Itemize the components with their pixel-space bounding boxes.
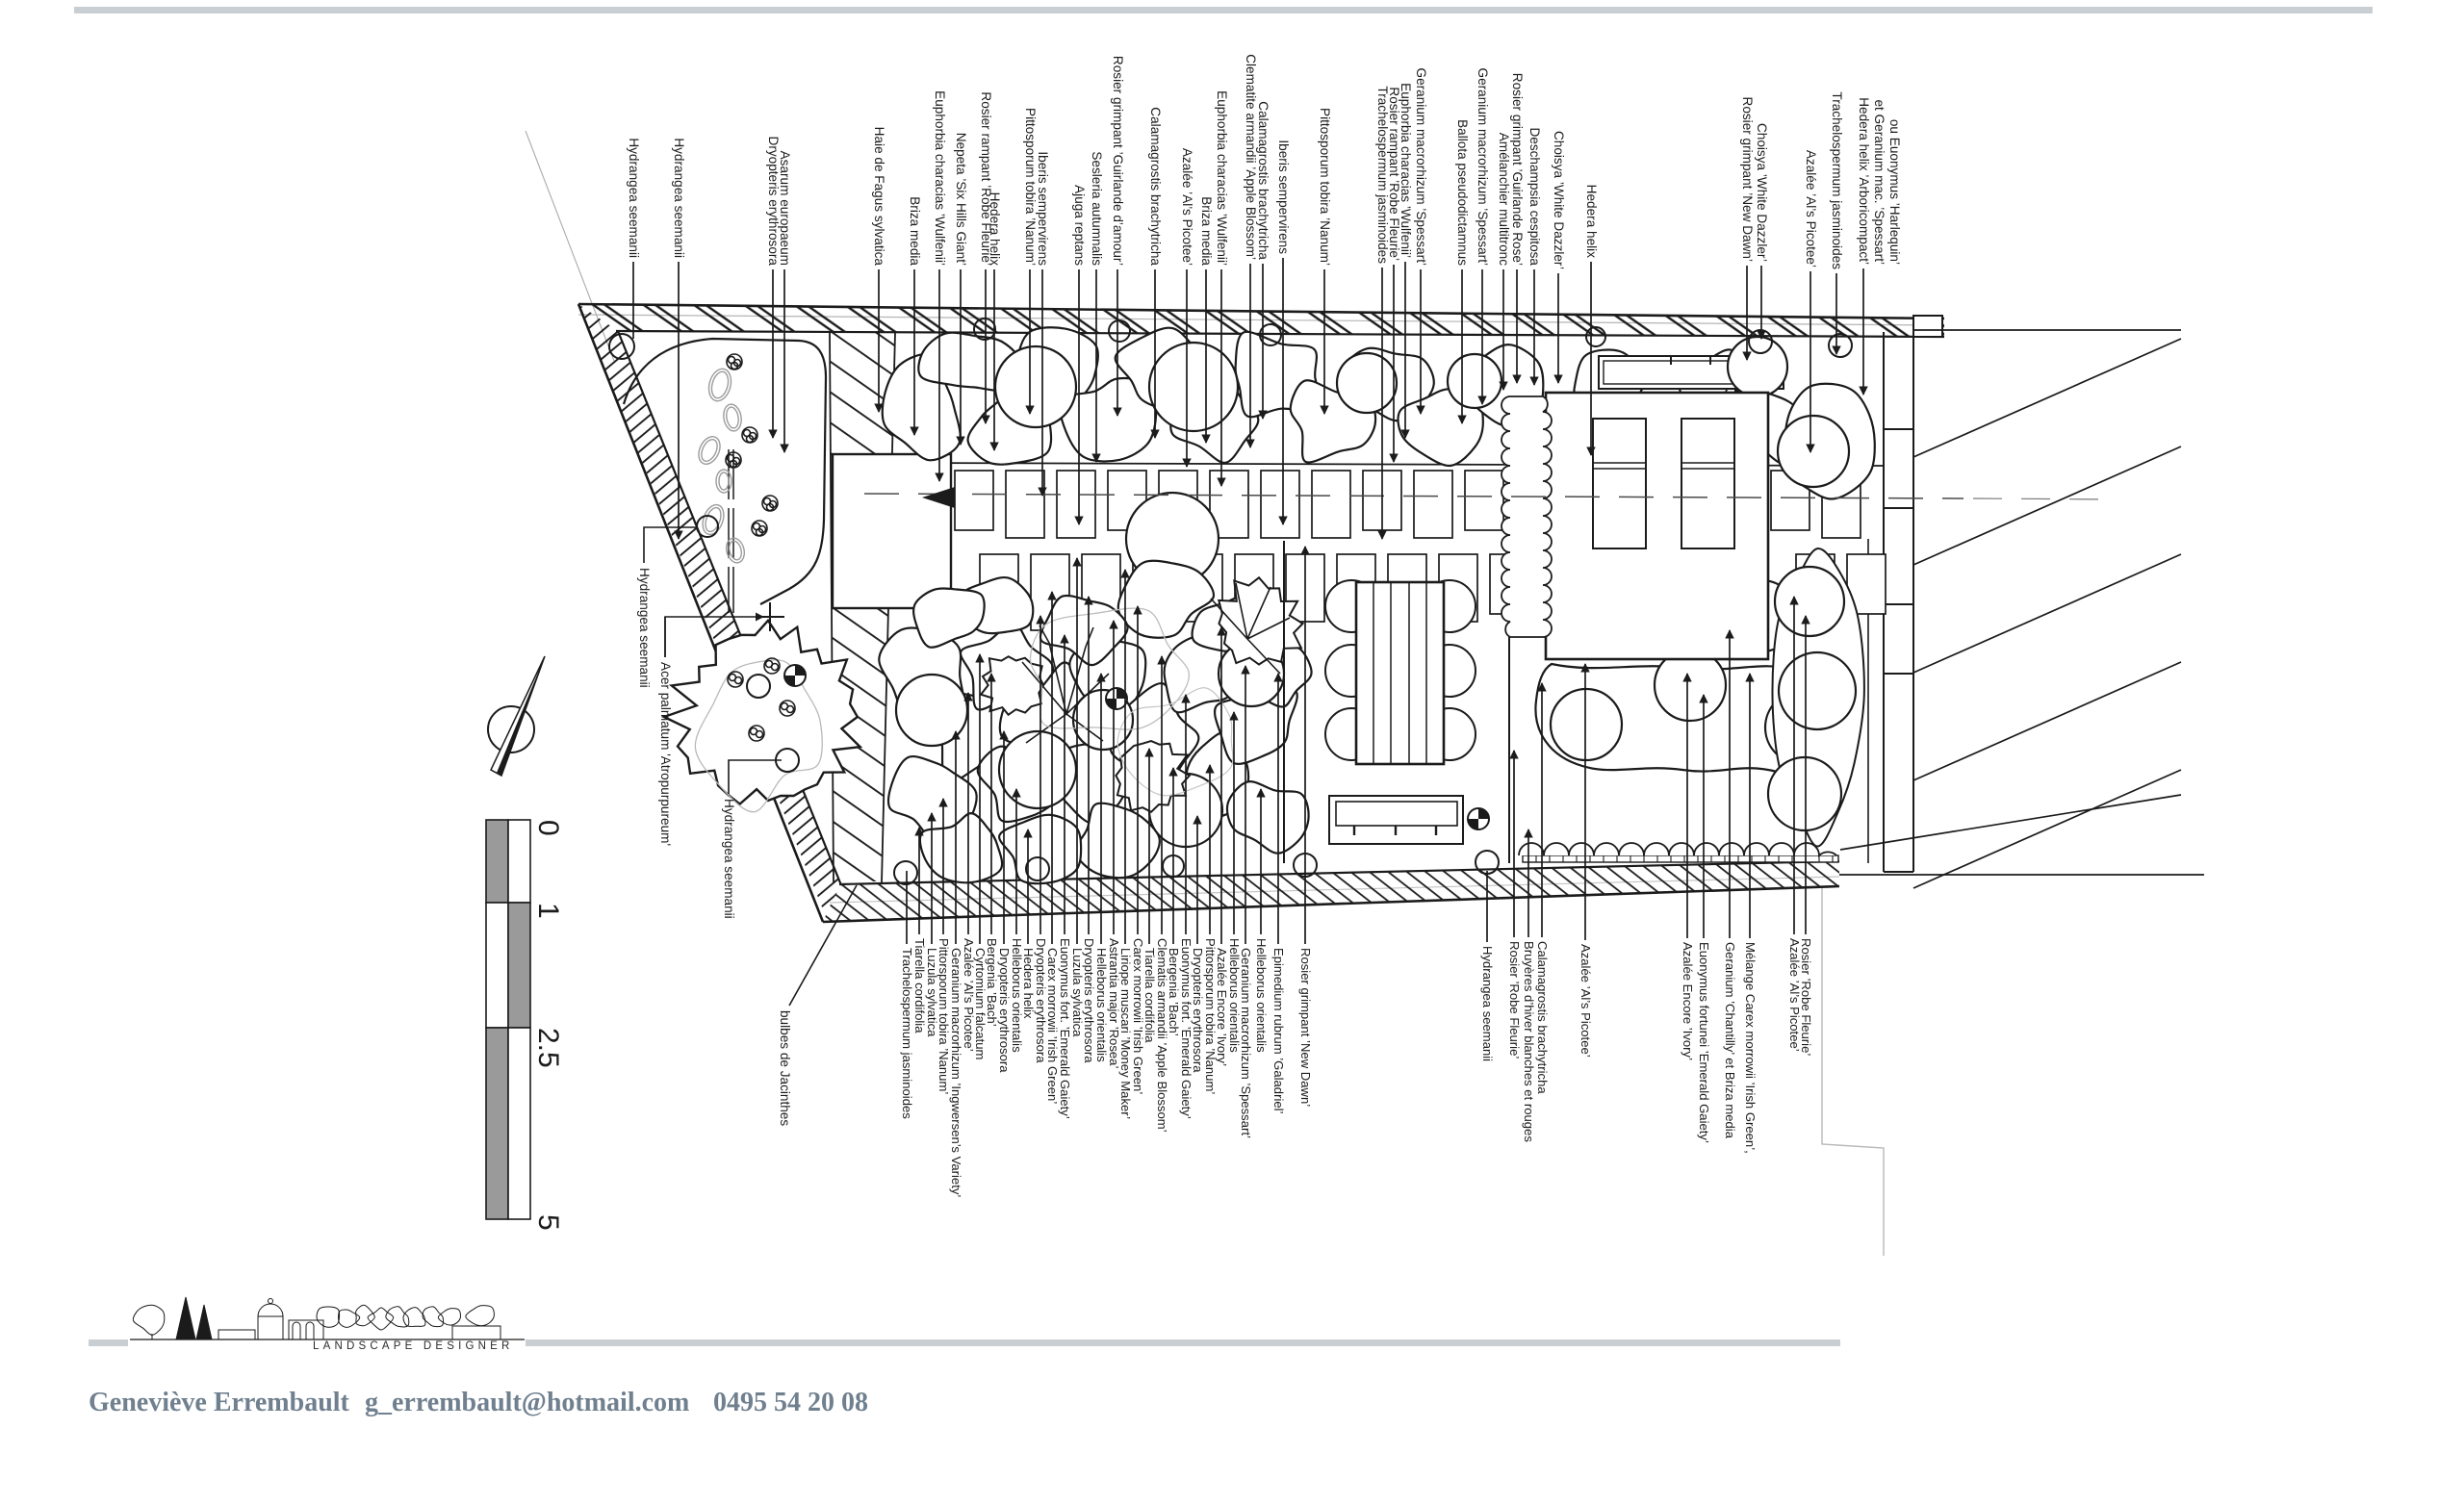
svg-text:Hydrangea seemanii: Hydrangea seemanii	[672, 138, 686, 258]
svg-text:Choisya ’White Dazzler’: Choisya ’White Dazzler’	[1755, 123, 1769, 262]
svg-text:Azalée ’Al’s Picotee’: Azalée ’Al’s Picotee’	[1180, 148, 1194, 266]
svg-text:Euonymus fortunei ’Emerald Gai: Euonymus fortunei ’Emerald Gaiety’	[1697, 942, 1711, 1143]
svg-text:et Geranium mac. ’Spessart’: et Geranium mac. ’Spessart’	[1872, 100, 1886, 266]
svg-text:Bergenia ’Bach’: Bergenia ’Bach’	[985, 938, 999, 1027]
svg-text:Geranium macrorhizum ’Ingwerse: Geranium macrorhizum ’Ingwersen’s Variet…	[949, 948, 963, 1197]
svg-text:Clematite armandii ’Apple Blos: Clematite armandii ’Apple Blossom’	[1244, 54, 1258, 260]
svg-text:Briza media: Briza media	[908, 196, 922, 266]
svg-text:Hedera helix: Hedera helix	[1021, 948, 1036, 1019]
svg-text:Azalée Encore ’Ivory’: Azalée Encore ’Ivory’	[1681, 942, 1695, 1060]
svg-text:Hydrangea seemanii: Hydrangea seemanii	[627, 138, 641, 258]
svg-text:0: 0	[532, 820, 564, 836]
svg-text:Liriope muscari ’Money Maker’: Liriope muscari ’Money Maker’	[1118, 948, 1133, 1119]
svg-text:Choisya ’White Dazzler’: Choisya ’White Dazzler’	[1552, 131, 1566, 269]
svg-text:Deschampsia cespitosa: Deschampsia cespitosa	[1527, 127, 1542, 266]
svg-text:Calamagrostis brachytricha: Calamagrostis brachytricha	[1148, 107, 1163, 266]
svg-text:Azalée ’Al’s Picotee’: Azalée ’Al’s Picotee’	[1804, 150, 1818, 268]
svg-text:Geranium macrorhizum ’Spessart: Geranium macrorhizum ’Spessart’	[1476, 68, 1490, 266]
svg-text:Azalée ’Al’s Picotee’: Azalée ’Al’s Picotee’	[1578, 944, 1593, 1058]
svg-text:Geranium ’Chantilly’ et Briza: Geranium ’Chantilly’ et Briza media	[1723, 942, 1737, 1139]
svg-text:Rosier grimpant ’Guirlande d’a: Rosier grimpant ’Guirlande d’amour’	[1111, 56, 1125, 266]
svg-text:Pittosporum tobira ’Nanum’: Pittosporum tobira ’Nanum’	[1318, 108, 1332, 266]
svg-text:Azalée Encore ’Ivory’: Azalée Encore ’Ivory’	[1215, 948, 1229, 1066]
svg-text:Bergenia ’Bach’: Bergenia ’Bach’	[1167, 948, 1181, 1036]
svg-text:Hedera helix: Hedera helix	[988, 192, 1002, 267]
svg-text:Rosier grimpant ’New Dawn’: Rosier grimpant ’New Dawn’	[1298, 948, 1313, 1107]
svg-text:2.5: 2.5	[532, 1028, 564, 1068]
svg-text:LANDSCAPE DESIGNER: LANDSCAPE DESIGNER	[313, 1340, 514, 1352]
svg-text:Hydrangea seemanii: Hydrangea seemanii	[637, 568, 652, 688]
svg-text:5: 5	[532, 1214, 564, 1231]
svg-text:Rosier grimpant ’Guirlande Ros: Rosier grimpant ’Guirlande Rose’	[1510, 73, 1525, 266]
svg-text:Rosier ’Robe Fleurie’: Rosier ’Robe Fleurie’	[1799, 938, 1813, 1056]
svg-text:Rosier ’Robe Fleurie’: Rosier ’Robe Fleurie’	[1507, 941, 1522, 1059]
svg-text:Nepeta ’Six Hills Giant’: Nepeta ’Six Hills Giant’	[954, 133, 968, 266]
svg-text:Acer palmatum 'Atropurpureum': Acer palmatum 'Atropurpureum'	[658, 662, 673, 846]
svg-text:Hedera helix: Hedera helix	[1584, 185, 1599, 259]
svg-text:Iberis sempervirens: Iberis sempervirens	[1036, 151, 1050, 266]
svg-text:Dryopteris erythrosora: Dryopteris erythrosora	[1082, 938, 1096, 1063]
svg-text:Iberis sempervirens: Iberis sempervirens	[1276, 140, 1291, 254]
svg-text:Geranium macrorhizum ’Spessart: Geranium macrorhizum ’Spessart’	[1414, 68, 1428, 266]
svg-text:Ballota pseudodictamnus: Ballota pseudodictamnus	[1455, 119, 1470, 266]
svg-text:Calamagrostis brachytricha: Calamagrostis brachytricha	[1256, 101, 1270, 260]
svg-text:Helleborus orientalis: Helleborus orientalis	[1094, 948, 1109, 1062]
svg-text:g_errembault@hotmail.com: g_errembault@hotmail.com	[365, 1388, 689, 1417]
svg-text:Calamagrostis brachytricha: Calamagrostis brachytricha	[1535, 941, 1550, 1094]
svg-text:Euphorbia characias ’Wulfenii’: Euphorbia characias ’Wulfenii’	[1399, 83, 1413, 258]
svg-text:Briza media: Briza media	[1199, 196, 1214, 266]
svg-text:Geranium macrorhizum ’Spessart: Geranium macrorhizum ’Spessart’	[1239, 948, 1253, 1138]
svg-text:Dryopteris erythrosora: Dryopteris erythrosora	[997, 948, 1012, 1073]
svg-text:Euphorbia characias ’Wulfenii’: Euphorbia characias ’Wulfenii’	[1215, 90, 1229, 266]
svg-text:Rosier grimpant ’New Dawn’: Rosier grimpant ’New Dawn’	[1740, 97, 1755, 263]
svg-text:Hydrangea seemanii: Hydrangea seemanii	[722, 799, 736, 919]
svg-text:Hedera helix ’Arboricompact’: Hedera helix ’Arboricompact’	[1857, 97, 1871, 265]
svg-text:Pittosporum tobira ’Nanum’: Pittosporum tobira ’Nanum’	[1023, 108, 1038, 266]
svg-text:Euphorbia characias ’Wulfenii’: Euphorbia characias ’Wulfenii’	[933, 90, 947, 266]
svg-text:Geneviève Errembault: Geneviève Errembault	[89, 1388, 350, 1417]
svg-text:Ajuga reptans: Ajuga reptans	[1072, 185, 1087, 266]
svg-text:Euonymus fort. ’Emerald Gaiety: Euonymus fort. ’Emerald Gaiety’	[1058, 938, 1072, 1119]
svg-text:Amélanchier multitronc: Amélanchier multitronc	[1497, 133, 1511, 266]
svg-text:Trachelospermum jasminoides: Trachelospermum jasminoides	[1830, 91, 1844, 269]
svg-text:ou Euonymus ’Harlequin’: ou Euonymus ’Harlequin’	[1887, 119, 1902, 265]
svg-text:Mélange Carex morrowii ’Irish: Mélange Carex morrowii ’Irish Green’,	[1743, 942, 1758, 1154]
svg-text:1: 1	[532, 903, 564, 919]
svg-text:0495 54 20 08: 0495 54 20 08	[713, 1388, 868, 1417]
svg-text:Asarum europaeum: Asarum europaeum	[778, 151, 792, 266]
svg-text:Bruyères d’hiver blanches et r: Bruyères d’hiver blanches et rouges	[1522, 941, 1536, 1142]
svg-text:Epimedium rubrum ’Galadriel’: Epimedium rubrum ’Galadriel’	[1271, 948, 1286, 1114]
svg-text:Pittorsporum tobira ’Nanum’: Pittorsporum tobira ’Nanum’	[937, 938, 951, 1094]
svg-text:Carex morrowii ’Irish Green’: Carex morrowii ’Irish Green’	[1045, 948, 1060, 1104]
svg-text:Trachelospermum jasminoides: Trachelospermum jasminoides	[900, 948, 914, 1119]
svg-text:Hydrangea seemanii: Hydrangea seemanii	[1480, 946, 1495, 1061]
svg-text:Helleborus orientalis: Helleborus orientalis	[1254, 938, 1269, 1053]
svg-text:Sesleria autumnalis: Sesleria autumnalis	[1090, 151, 1104, 266]
svg-text:Tiarella cordifolia: Tiarella cordifolia	[912, 938, 927, 1033]
svg-text:bulbes de Jacinthes: bulbes de Jacinthes	[778, 1010, 792, 1126]
svg-text:Haie de Fagus sylvatica: Haie de Fagus sylvatica	[872, 127, 886, 267]
svg-text:Tiarella cordifolia: Tiarella cordifolia	[1142, 948, 1157, 1043]
svg-text:Dryopteris erythrosora: Dryopteris erythrosora	[1191, 948, 1205, 1073]
